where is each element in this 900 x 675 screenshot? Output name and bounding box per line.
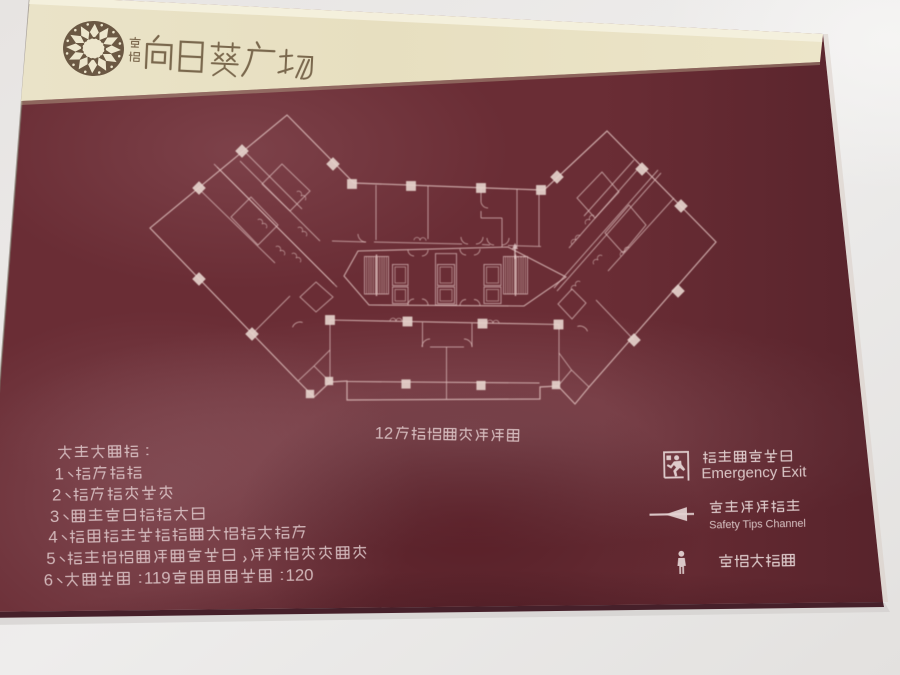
svg-text:12: 12 [375, 424, 394, 442]
svg-text:6: 6 [44, 570, 54, 589]
svg-text:Emergency Exit: Emergency Exit [701, 463, 807, 482]
svg-text:Safety Tips Channel: Safety Tips Channel [709, 518, 806, 532]
svg-text:2: 2 [52, 485, 62, 504]
svg-text:4: 4 [48, 527, 58, 546]
svg-text:119: 119 [144, 568, 171, 588]
svg-text:120: 120 [285, 565, 313, 585]
svg-text:3: 3 [50, 507, 60, 526]
svg-text:1: 1 [54, 464, 64, 483]
svg-text:5: 5 [46, 549, 56, 568]
